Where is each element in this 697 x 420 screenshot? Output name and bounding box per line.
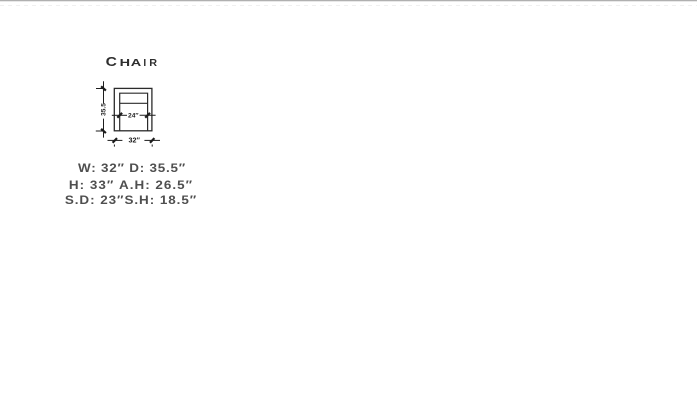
svg-text:32″: 32″ <box>128 136 140 145</box>
svg-text:24″: 24″ <box>128 113 139 120</box>
svg-text:35.5: 35.5 <box>101 103 108 116</box>
